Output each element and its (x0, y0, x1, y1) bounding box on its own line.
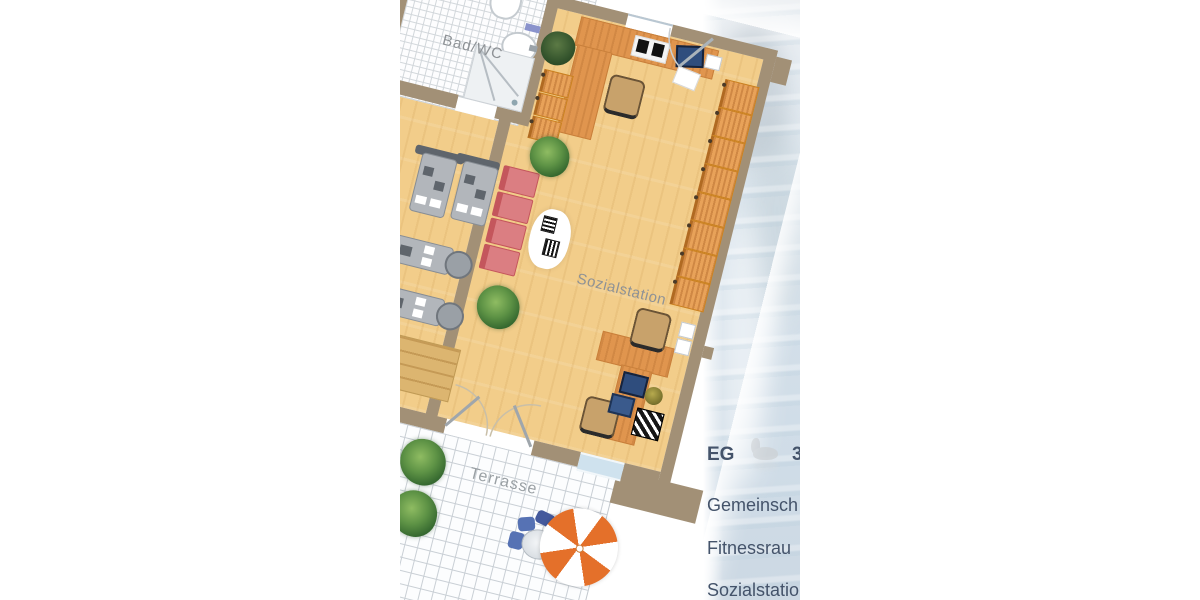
device (542, 238, 561, 258)
faucet (529, 45, 538, 53)
parasol-pole (575, 544, 585, 554)
swan-body (753, 447, 778, 460)
wall-stub-right (701, 346, 714, 360)
brochure-clip: Bad/WC (400, 0, 800, 600)
swan-reflection (753, 461, 778, 470)
legend-partial-number: 3 (792, 444, 800, 466)
page-background: Bad/WC (0, 0, 1200, 600)
swan (745, 438, 785, 472)
legend-item-gemeinschaftsraum: Gemeinsch (707, 495, 798, 516)
floor-level-label: EG (707, 444, 734, 466)
legend-item-sozialstation: Sozialstatio (707, 580, 799, 600)
device (540, 215, 557, 234)
legend-item-fitnessraum: Fitnessrau (707, 538, 791, 559)
